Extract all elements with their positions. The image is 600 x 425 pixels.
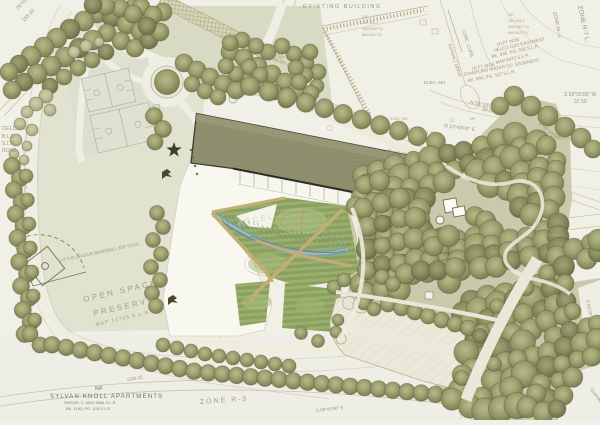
svg-text:WAY163 TQ: WAY163 TQ — [508, 25, 529, 29]
svg-text:WAY163 TQ: WAY163 TQ — [362, 27, 383, 31]
svg-text:S.L.R.: S.L.R. — [2, 141, 16, 147]
svg-text:PARCEL C, MAP 8996 S.L.R.: PARCEL C, MAP 8996 S.L.R. — [64, 400, 117, 405]
svg-text:37.50': 37.50' — [574, 99, 588, 105]
svg-text:BAY163 TQ: BAY163 TQ — [508, 31, 528, 35]
svg-text:8-103: 8-103 — [548, 233, 558, 237]
svg-text:BK. 1193, PG. 103 S.L.R.: BK. 1193, PG. 103 S.L.R. — [66, 406, 111, 411]
svg-text:EXISTING BUILDING: EXISTING BUILDING — [303, 4, 382, 10]
svg-text:GR-104.2: GR-104.2 — [508, 19, 524, 23]
svg-text:OP: OP — [508, 13, 514, 17]
svg-text:ELEC. MH: ELEC. MH — [390, 117, 408, 121]
svg-text:S 83°55'00" W: S 83°55'00" W — [564, 92, 597, 98]
svg-text:Ca. Strm: Ca. Strm — [548, 227, 563, 231]
svg-text:B.L.R.: B.L.R. — [2, 134, 16, 140]
svg-text:BAY163 TQ: BAY163 TQ — [362, 33, 382, 37]
svg-text:MS: MS — [470, 117, 476, 121]
svg-text:300.00': 300.00' — [330, 256, 347, 263]
svg-text:CELOTTO: CELOTTO — [2, 126, 29, 132]
svg-text:N/F: N/F — [95, 386, 103, 392]
svg-text:GR-103.4: GR-103.4 — [362, 21, 378, 25]
svg-text:ROAD: ROAD — [2, 148, 17, 154]
svg-text:OP: OP — [362, 15, 368, 19]
svg-text:ELEC. MH: ELEC. MH — [424, 80, 445, 85]
